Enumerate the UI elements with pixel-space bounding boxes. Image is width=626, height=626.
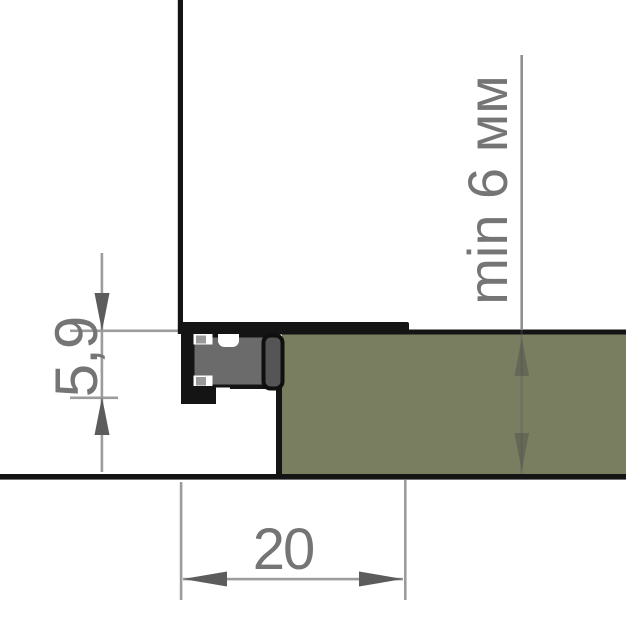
dim-width-label: 20 <box>253 521 314 579</box>
dim-width-arrow-left-icon <box>183 572 227 587</box>
profile-notch-bottom <box>217 389 232 404</box>
profile-slot-top-block <box>196 336 206 344</box>
profile-top-flange <box>181 322 409 335</box>
dim-height-label: 5,9 <box>47 317 107 397</box>
panel-body <box>282 334 626 475</box>
profile-bottom-leg <box>181 386 216 404</box>
profile-notch-top <box>218 334 239 347</box>
dim-min-thickness-label: min 6 мм <box>460 75 516 305</box>
panel-group <box>276 330 626 476</box>
dim-width-extension-line-right <box>404 480 407 600</box>
profile-slot-bottom-block <box>196 377 206 386</box>
wall-bottom-line <box>0 474 626 480</box>
wall-vertical-line <box>178 0 183 334</box>
dim-min-dimension-line <box>520 55 523 330</box>
dim-width-arrow-right-icon <box>359 572 403 587</box>
technical-drawing-canvas: 5,9 20 min 6 мм <box>0 0 626 626</box>
panel-left-edge-line <box>276 386 282 475</box>
dim-width-extension-line-left <box>180 482 183 600</box>
dim-height-arrow-up-icon <box>95 397 110 435</box>
profile-clamp-cap <box>264 336 283 389</box>
